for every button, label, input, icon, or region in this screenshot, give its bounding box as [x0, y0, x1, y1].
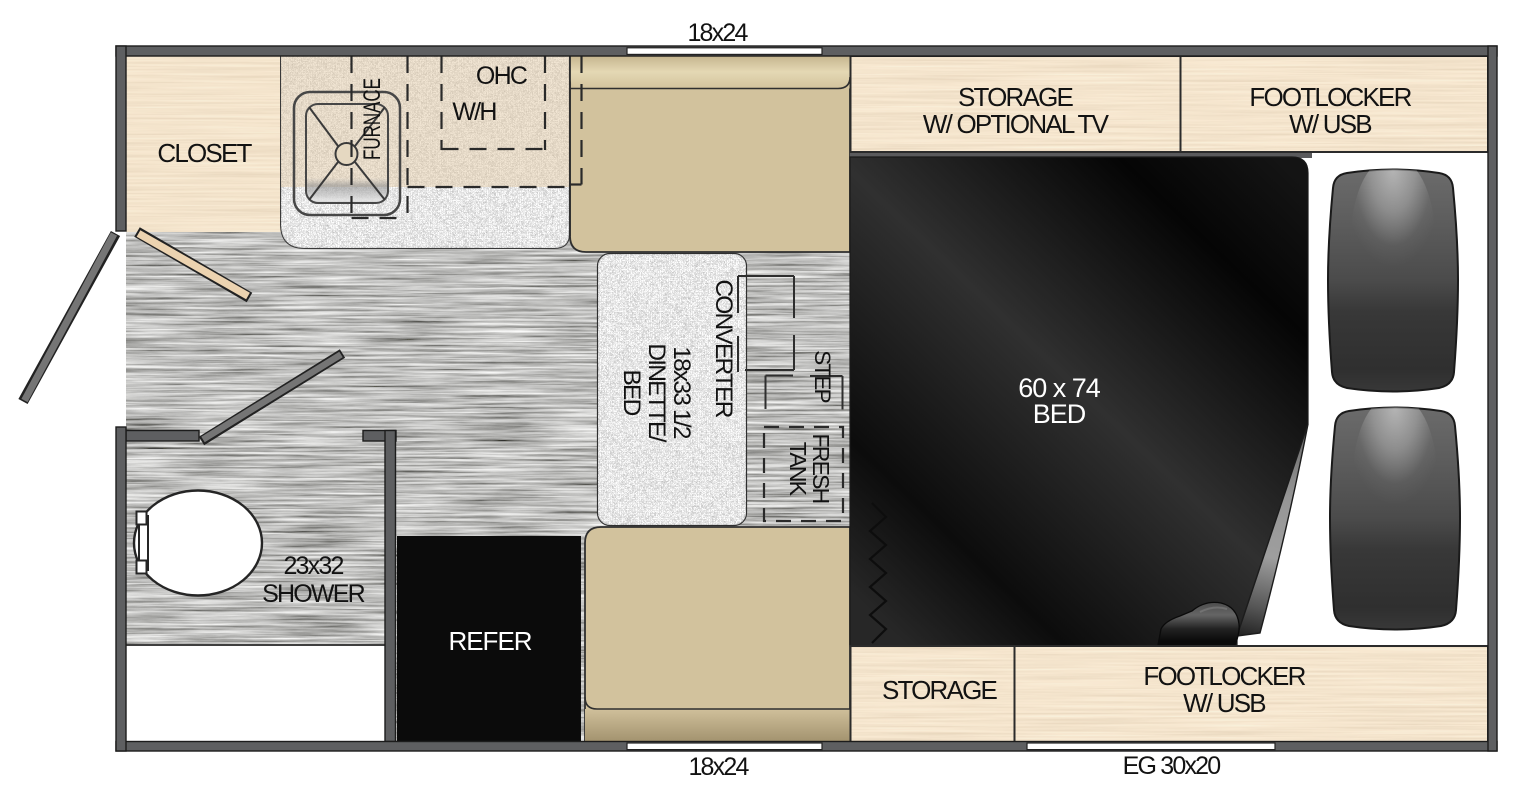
svg-text:BED: BED: [618, 370, 645, 416]
svg-text:18x24: 18x24: [688, 753, 749, 781]
svg-text:STORAGE: STORAGE: [958, 82, 1074, 112]
svg-text:W/ USB: W/ USB: [1183, 688, 1265, 718]
svg-text:TANK: TANK: [785, 442, 811, 497]
svg-text:DINETTE/: DINETTE/: [643, 343, 670, 442]
svg-text:W/H: W/H: [452, 98, 496, 126]
svg-text:CLOSET: CLOSET: [157, 138, 252, 168]
svg-text:FOOTLOCKER: FOOTLOCKER: [1143, 661, 1305, 691]
svg-text:W/ OPTIONAL TV: W/ OPTIONAL TV: [923, 109, 1110, 139]
svg-text:REFER: REFER: [448, 626, 531, 656]
svg-text:W/ USB: W/ USB: [1289, 109, 1371, 139]
svg-text:SHOWER: SHOWER: [262, 580, 364, 608]
svg-text:18x33 1/2: 18x33 1/2: [668, 346, 695, 439]
svg-text:18x24: 18x24: [687, 19, 748, 47]
svg-text:EG 30x20: EG 30x20: [1123, 752, 1221, 780]
svg-text:CONVERTER: CONVERTER: [710, 279, 737, 417]
svg-text:FURNACE: FURNACE: [359, 78, 386, 160]
svg-text:STORAGE: STORAGE: [882, 675, 998, 705]
svg-text:STEP: STEP: [810, 350, 835, 402]
svg-text:OHC: OHC: [476, 62, 528, 90]
svg-text:23x32: 23x32: [283, 552, 343, 580]
svg-text:BED: BED: [1033, 399, 1086, 429]
svg-text:FOOTLOCKER: FOOTLOCKER: [1249, 82, 1411, 112]
